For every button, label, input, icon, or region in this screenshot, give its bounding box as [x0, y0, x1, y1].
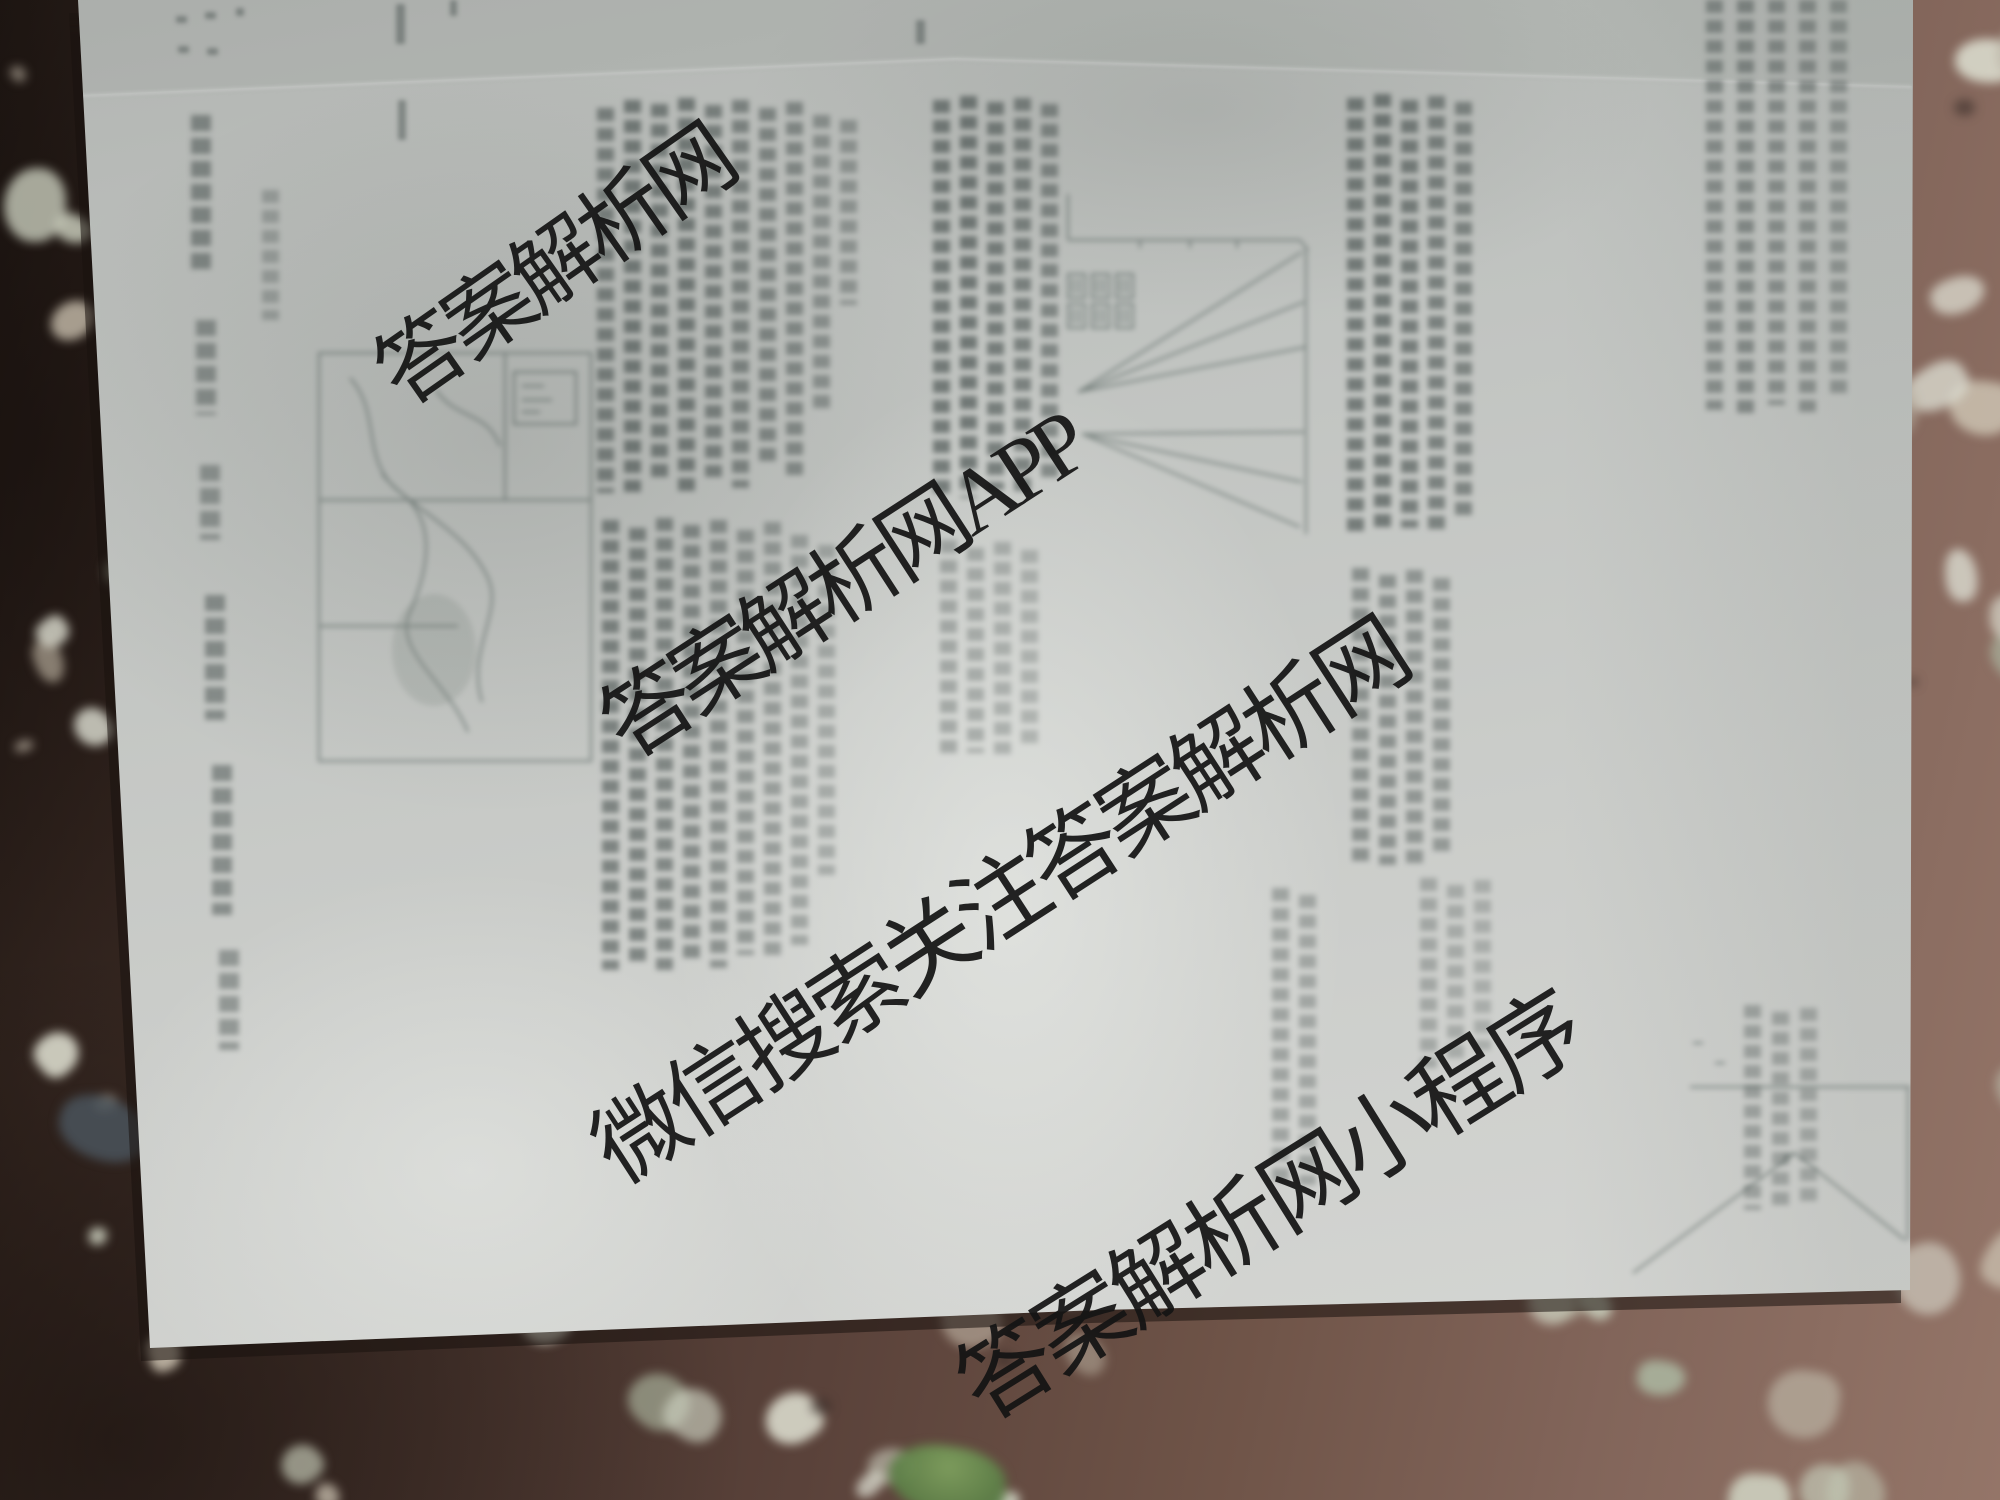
text-column: [759, 108, 776, 468]
terrazzo-chip: [1990, 594, 2000, 640]
text-column: [219, 950, 239, 1050]
text-column: [200, 465, 220, 540]
terrazzo-chip: [1974, 1219, 2000, 1295]
text-fragment: [396, 4, 405, 44]
text-column: [1706, 0, 1723, 410]
text-column: [1799, 0, 1816, 412]
text-column: [602, 520, 619, 970]
text-column: [1347, 98, 1364, 533]
text-fragment: [236, 8, 244, 16]
text-fragment: [916, 20, 925, 44]
exam-paper-sheet: [0, 0, 2000, 1500]
paper-crease-left: [80, 58, 955, 98]
terrazzo-chip: [1726, 1472, 1792, 1500]
text-column: [191, 115, 211, 275]
text-fragment: [398, 100, 406, 140]
text-column: [1830, 0, 1847, 395]
pale-chip: [4, 168, 66, 242]
text-column: [1406, 570, 1423, 865]
terrazzo-chip: [1944, 548, 1978, 602]
terrazzo-chip: [87, 1226, 107, 1246]
terrazzo-chip: [8, 63, 30, 85]
terrazzo-chip: [1926, 268, 1991, 322]
terrazzo-chip: [1763, 1365, 1844, 1444]
terrazzo-chip: [27, 1024, 88, 1085]
terrazzo-chip: [314, 1482, 341, 1500]
text-fragment: [178, 46, 189, 53]
terrazzo-chip: [1634, 1357, 1688, 1400]
text-column: [1455, 102, 1472, 522]
plant-leaf: [884, 1438, 1011, 1500]
terrazzo-chip: [756, 1383, 830, 1455]
terrazzo-chip: [14, 738, 35, 754]
terrazzo-chip: [1953, 36, 2000, 86]
text-column: [1401, 100, 1418, 528]
text-column: [1428, 96, 1445, 534]
text-fragment: [205, 12, 216, 19]
text-column: [813, 115, 830, 410]
map-figure: [316, 350, 594, 764]
text-fragment: [450, 0, 457, 16]
text-column: [1433, 578, 1450, 858]
text-fragment: [207, 48, 218, 55]
text-column: [205, 595, 225, 720]
text-column: [967, 548, 984, 753]
terrazzo-chip: [1986, 1049, 2000, 1134]
text-column: [196, 320, 216, 415]
text-column: [1737, 0, 1754, 418]
text-column: [1744, 1005, 1761, 1210]
text-column: [1021, 550, 1038, 745]
text-column: [732, 100, 749, 488]
text-column: [212, 765, 232, 915]
text-column: [786, 102, 803, 480]
text-column: [262, 190, 279, 320]
flow-diagram-figure: [1052, 182, 1342, 552]
text-column: [994, 542, 1011, 754]
terrazzo-pebble: [1954, 99, 1976, 116]
text-column: [1374, 94, 1391, 534]
photo-scene: 答案解析网 答案解析网APP 微信搜索关注答案解析网 答案解析网小程序: [0, 0, 2000, 1500]
text-column: [1800, 1008, 1817, 1208]
text-column: [840, 120, 857, 305]
terrazzo-pebble: [810, 1398, 831, 1415]
text-column: [1772, 1012, 1789, 1207]
text-column: [1768, 0, 1785, 405]
text-fragment: [176, 16, 187, 23]
